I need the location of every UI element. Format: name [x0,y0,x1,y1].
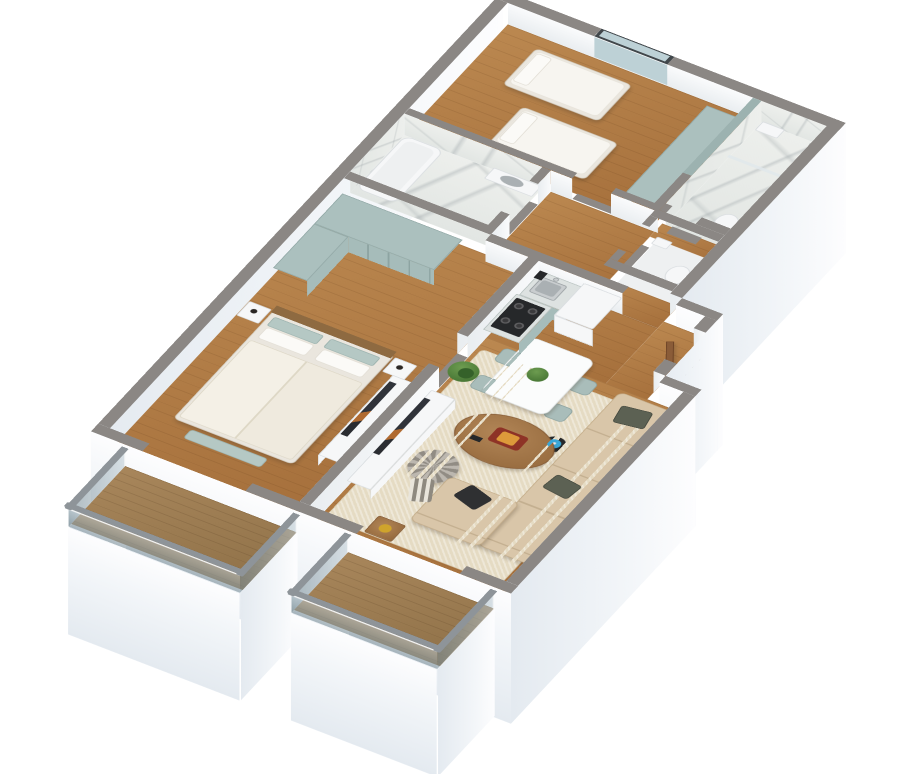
sofa-pillow-striped [407,478,435,503]
floorplan-canvas [0,0,900,774]
